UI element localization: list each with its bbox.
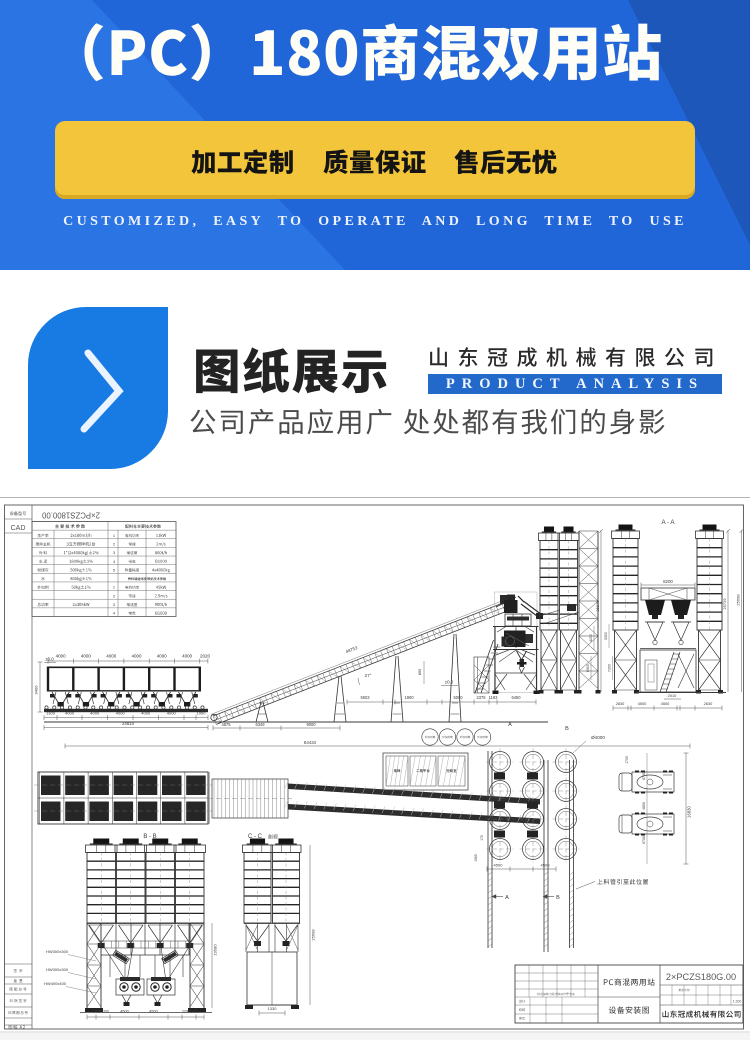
svg-text:4500: 4500: [541, 863, 551, 868]
svg-text:1:200: 1:200: [733, 1000, 742, 1004]
svg-text:1700: 1700: [625, 756, 629, 764]
svg-text:±0.0: ±0.0: [445, 680, 454, 685]
svg-text:4000: 4000: [167, 711, 177, 716]
svg-text:4000: 4000: [116, 711, 126, 716]
svg-text:2×PCZS1800.00: 2×PCZS1800.00: [41, 511, 100, 520]
svg-text:1300: 1300: [46, 711, 56, 716]
svg-text:800: 800: [418, 669, 422, 675]
svg-text:2: 2: [113, 542, 116, 547]
svg-text:1950: 1950: [197, 711, 207, 716]
svg-text:HW300x300: HW300x300: [46, 967, 69, 972]
svg-text:2×PCZS180G.00: 2×PCZS180G.00: [666, 972, 736, 982]
svg-text:4: 4: [113, 559, 116, 564]
svg-text:4500: 4500: [494, 863, 504, 868]
svg-text:4000: 4000: [90, 711, 100, 716]
svg-text:CAD: CAD: [11, 525, 26, 532]
svg-text:A - A: A - A: [661, 519, 675, 526]
svg-text:3: 3: [113, 550, 116, 555]
svg-text:B: B: [556, 895, 560, 901]
svg-text:1193: 1193: [489, 695, 499, 700]
svg-text:5000: 5000: [453, 695, 463, 700]
svg-text:48753: 48753: [345, 645, 359, 654]
svg-text:A: A: [505, 895, 509, 901]
svg-text:4000: 4000: [65, 711, 75, 716]
svg-text:3: 3: [113, 602, 116, 607]
svg-text:19580: 19580: [213, 944, 218, 956]
svg-text:6900: 6900: [586, 664, 590, 672]
svg-text:27°: 27°: [365, 673, 372, 678]
svg-text:9000: 9000: [306, 722, 316, 727]
svg-text:HW400x400: HW400x400: [44, 981, 67, 986]
svg-text:4800: 4800: [642, 802, 646, 810]
svg-text:1900: 1900: [404, 695, 414, 700]
svg-text:B: B: [565, 726, 569, 732]
svg-text:4200: 4200: [589, 634, 593, 642]
svg-text:6450: 6450: [511, 695, 521, 700]
svg-text:7200: 7200: [608, 664, 612, 672]
svg-text:4500: 4500: [149, 1010, 157, 1014]
svg-text:6700: 6700: [642, 836, 646, 844]
svg-text:±0.0: ±0.0: [45, 657, 54, 662]
svg-text:2830: 2830: [616, 701, 625, 706]
svg-text:2010: 2010: [668, 693, 677, 698]
svg-text:4000: 4000: [141, 711, 151, 716]
svg-text:5503: 5503: [360, 695, 370, 700]
svg-text:1425 2200: 1425 2200: [93, 1010, 109, 1014]
svg-text:25698: 25698: [311, 929, 316, 941]
svg-text:1565: 1565: [474, 854, 478, 862]
svg-text:24810: 24810: [122, 721, 135, 726]
svg-text:Ø4000: Ø4000: [591, 735, 605, 740]
svg-text:3400: 3400: [34, 685, 39, 695]
svg-text:5: 5: [113, 567, 116, 572]
svg-text:25879: 25879: [595, 600, 600, 612]
svg-text:1: 1: [113, 533, 116, 538]
svg-text:25698: 25698: [736, 594, 741, 606]
svg-text:4000: 4000: [106, 654, 117, 659]
svg-text:6700: 6700: [642, 772, 646, 780]
svg-text:4000: 4000: [182, 654, 193, 659]
svg-text:4500: 4500: [661, 701, 670, 706]
svg-text:170: 170: [480, 835, 484, 841]
svg-text:3300: 3300: [604, 632, 608, 640]
svg-text:84434: 84434: [304, 740, 317, 745]
svg-text:4000: 4000: [157, 654, 168, 659]
svg-text:1: 1: [113, 585, 116, 590]
svg-text:A: A: [508, 722, 512, 728]
svg-text:2020: 2020: [200, 654, 211, 659]
svg-text:25729: 25729: [722, 598, 727, 610]
svg-text:4500: 4500: [638, 701, 647, 706]
svg-text:2375: 2375: [476, 695, 486, 700]
svg-text:16830: 16830: [687, 806, 692, 818]
svg-text:4000: 4000: [56, 654, 67, 659]
svg-text:2: 2: [113, 593, 116, 598]
svg-text:HW300x300: HW300x300: [46, 949, 69, 954]
svg-text:4: 4: [113, 611, 116, 616]
svg-text:4875: 4875: [221, 722, 231, 727]
svg-text:2200 1425: 2200 1425: [182, 1010, 198, 1014]
svg-text:8200: 8200: [663, 579, 673, 584]
svg-text:4000: 4000: [131, 654, 142, 659]
svg-text:1330: 1330: [268, 1006, 278, 1011]
svg-text:4500: 4500: [120, 1010, 128, 1014]
svg-text:2630: 2630: [704, 701, 713, 706]
svg-text:6349: 6349: [255, 722, 265, 727]
svg-text:4000: 4000: [81, 654, 92, 659]
